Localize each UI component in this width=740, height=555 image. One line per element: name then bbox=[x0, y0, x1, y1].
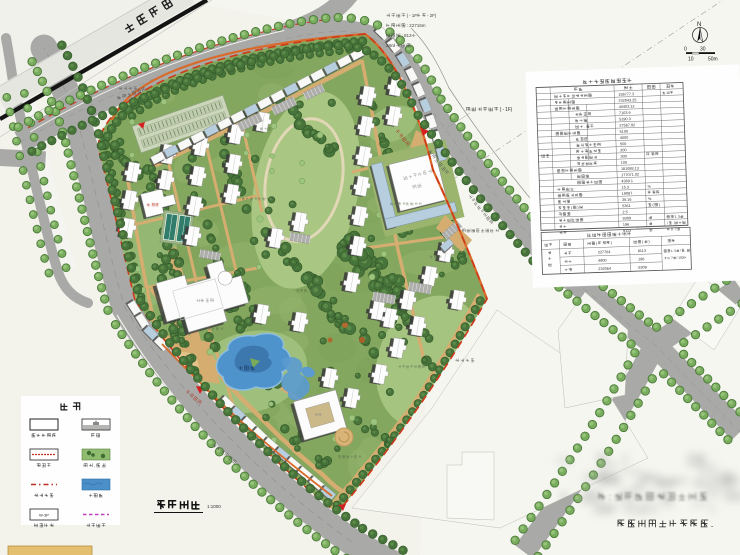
svg-text:/: / bbox=[667, 221, 668, 225]
svg-text:1:1000: 1:1000 bbox=[207, 504, 221, 509]
svg-text:35.16: 35.16 bbox=[622, 198, 632, 202]
svg-text:40403.12: 40403.12 bbox=[619, 105, 635, 110]
svg-text:5100: 5100 bbox=[620, 130, 629, 134]
svg-text::: : bbox=[402, 33, 403, 38]
svg-text::: : bbox=[407, 23, 408, 28]
svg-text:F: F bbox=[414, 13, 417, 18]
svg-text:200: 200 bbox=[620, 148, 626, 152]
svg-text:2.5: 2.5 bbox=[622, 210, 627, 214]
svg-text:27567.92: 27567.92 bbox=[619, 123, 635, 128]
svg-text:300: 300 bbox=[620, 154, 626, 158]
svg-text:7103.9: 7103.9 bbox=[619, 111, 631, 115]
svg-text:8113: 8113 bbox=[638, 249, 646, 253]
svg-text:30: 30 bbox=[700, 47, 706, 53]
svg-text:50m: 50m bbox=[708, 57, 718, 63]
svg-text:4900: 4900 bbox=[598, 259, 607, 263]
svg-text:100: 100 bbox=[621, 161, 627, 165]
svg-text:m: m bbox=[683, 255, 686, 259]
svg-text:227764: 227764 bbox=[598, 250, 611, 254]
svg-text:177071.02: 177071.02 bbox=[621, 173, 639, 178]
svg-text:m: m bbox=[422, 23, 426, 28]
svg-text:,: , bbox=[94, 463, 95, 468]
svg-text:4000: 4000 bbox=[620, 136, 629, 140]
svg-text:19087: 19087 bbox=[622, 191, 633, 195]
svg-text:W-3P: W-3P bbox=[39, 513, 49, 518]
svg-text:4369.1: 4369.1 bbox=[621, 179, 633, 183]
svg-text:196: 196 bbox=[623, 223, 629, 227]
svg-text:8309: 8309 bbox=[638, 265, 647, 269]
svg-text:232064: 232064 bbox=[598, 267, 611, 271]
svg-text:5: 5 bbox=[678, 215, 680, 219]
svg-text:,: , bbox=[673, 221, 674, 225]
svg-text:5361: 5361 bbox=[622, 204, 631, 208]
svg-text:6: 6 bbox=[668, 91, 670, 95]
svg-text:156777.3: 156777.3 bbox=[618, 92, 634, 97]
svg-text:9309: 9309 bbox=[623, 216, 632, 220]
svg-text:N: N bbox=[697, 22, 701, 28]
svg-text:0: 0 bbox=[684, 47, 687, 53]
svg-text:.: . bbox=[584, 125, 585, 129]
svg-text:181088.13: 181088.13 bbox=[621, 166, 639, 171]
svg-text:.: . bbox=[711, 519, 714, 529]
svg-text:196: 196 bbox=[638, 257, 644, 261]
svg-text::: : bbox=[609, 492, 612, 503]
svg-text:232043.25: 232043.25 bbox=[618, 98, 636, 103]
svg-text:10: 10 bbox=[688, 57, 694, 63]
svg-text:15.3: 15.3 bbox=[621, 185, 629, 189]
svg-text:500: 500 bbox=[620, 142, 626, 146]
svg-text:5190.3: 5190.3 bbox=[619, 117, 631, 121]
svg-text:3: 3 bbox=[409, 33, 412, 38]
